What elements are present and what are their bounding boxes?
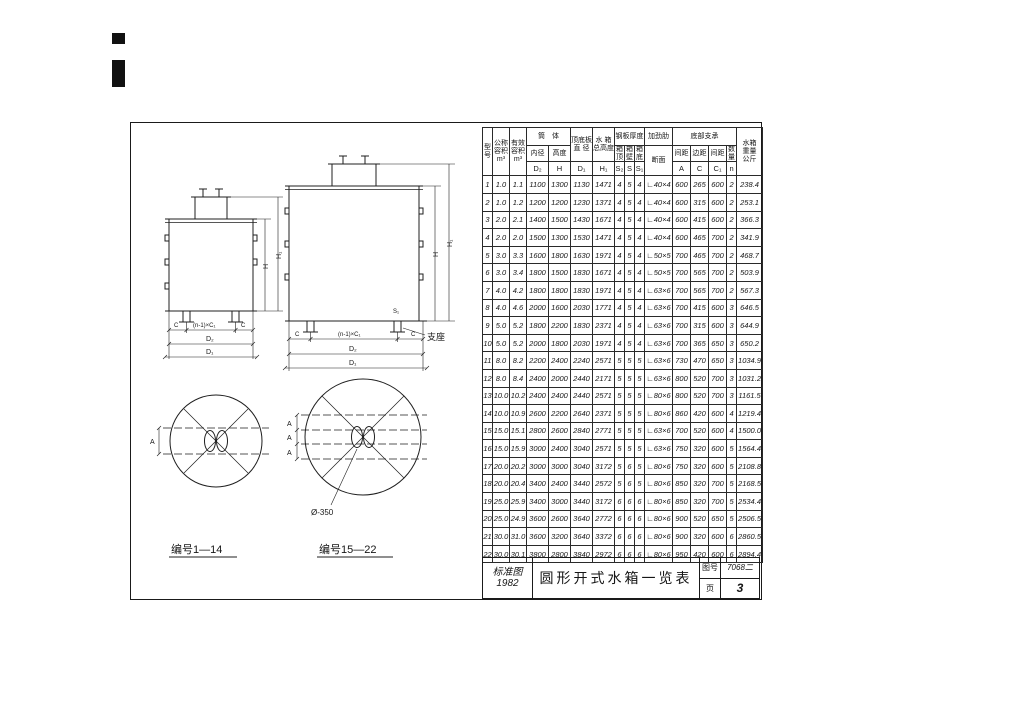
table-cell: 2600 — [549, 510, 571, 528]
table-cell: 600 — [709, 193, 727, 211]
table-cell: 3440 — [571, 493, 593, 511]
table-cell: 21 — [483, 528, 493, 546]
table-cell: 2600 — [527, 405, 549, 423]
table-cell: 4 — [635, 299, 645, 317]
table-cell: 850 — [673, 475, 691, 493]
column-header: H₁ — [593, 162, 615, 176]
table-cell: 5 — [483, 246, 493, 264]
dim-label-s1: S₁ — [393, 309, 399, 315]
table-cell: 5 — [727, 475, 737, 493]
table-cell: 470 — [691, 352, 709, 370]
tank-table-wrapper: 型 号公称 容积 m³有效 容积 m³筒 体顶底板 直 径水 箱 总高度钢板厚度… — [482, 127, 760, 558]
table-cell: 1400 — [527, 211, 549, 229]
table-cell: 5 — [625, 281, 635, 299]
table-cell: 650 — [709, 334, 727, 352]
table-cell: 3000 — [549, 457, 571, 475]
table-cell: 3.3 — [510, 246, 527, 264]
table-row: 84.04.62000160020301771454∟63×6700415600… — [483, 299, 763, 317]
table-cell: 265 — [691, 176, 709, 194]
table-cell: 700 — [709, 369, 727, 387]
drawing-number-value: 7068二 — [721, 558, 759, 578]
table-cell: 4.0 — [493, 299, 510, 317]
table-cell: 850 — [673, 493, 691, 511]
table-cell: 4 — [615, 334, 625, 352]
table-cell: 6 — [625, 510, 635, 528]
table-cell: 700 — [673, 264, 691, 282]
dim-label-nc1: (n-1)×C₁ — [193, 323, 216, 329]
support-leg — [307, 321, 314, 332]
column-header: 水箱 重量 公斤 — [737, 128, 763, 176]
table-cell: 320 — [691, 440, 709, 458]
table-row: 118.08.22200240022402571555∟63×673047065… — [483, 352, 763, 370]
table-cell: 1500 — [527, 229, 549, 247]
table-cell: 4 — [727, 422, 737, 440]
table-cell: 1800 — [527, 281, 549, 299]
table-cell: 900 — [673, 510, 691, 528]
table-cell: 1471 — [593, 176, 615, 194]
table-cell: 3600 — [527, 528, 549, 546]
table-cell: 600 — [673, 193, 691, 211]
column-header: 箱顶 — [615, 146, 625, 162]
table-cell: 600 — [709, 317, 727, 335]
table-cell: 1800 — [549, 281, 571, 299]
table-cell: 650 — [709, 352, 727, 370]
table-cell: 5 — [615, 405, 625, 423]
table-cell: 4 — [615, 317, 625, 335]
table-cell: 2200 — [527, 352, 549, 370]
dim-label-d2: D₂ — [206, 336, 214, 343]
table-cell: 2 — [727, 281, 737, 299]
table-cell: 650 — [709, 510, 727, 528]
table-cell: 5 — [625, 334, 635, 352]
table-cell: 600 — [673, 229, 691, 247]
small-tank-plan: A — [150, 395, 269, 487]
table-cell: 320 — [691, 457, 709, 475]
table-cell: 6 — [727, 528, 737, 546]
table-cell: 2371 — [593, 405, 615, 423]
table-cell: ∟80×6 — [645, 528, 673, 546]
table-cell: 2 — [727, 176, 737, 194]
column-header: 顶底板 直 径 — [571, 128, 593, 162]
table-cell: 30.0 — [493, 528, 510, 546]
table-cell: 9 — [483, 317, 493, 335]
column-header: D₁ — [571, 162, 593, 176]
table-cell: 3000 — [549, 493, 571, 511]
table-cell: 1471 — [593, 229, 615, 247]
support-leg — [183, 311, 190, 322]
table-cell: 4 — [615, 211, 625, 229]
table-cell: 14 — [483, 405, 493, 423]
table-cell: 700 — [709, 493, 727, 511]
table-cell: 1671 — [593, 211, 615, 229]
manhole-label: Ø-350 — [311, 508, 334, 517]
table-cell: 3372 — [593, 528, 615, 546]
dim-label-h1: H₁ — [447, 239, 454, 247]
table-cell: 5 — [635, 457, 645, 475]
table-cell: 6 — [615, 493, 625, 511]
table-cell: 5 — [635, 369, 645, 387]
table-cell: 4 — [615, 264, 625, 282]
table-row: 21.01.21200120012301371454∟40×4600315600… — [483, 193, 763, 211]
table-cell: ∟50×5 — [645, 264, 673, 282]
table-cell: 6 — [625, 457, 635, 475]
table-cell: 1300 — [549, 229, 571, 247]
table-cell: 1430 — [571, 211, 593, 229]
table-cell: 5 — [615, 422, 625, 440]
table-cell: 5.0 — [493, 334, 510, 352]
table-cell: 15.1 — [510, 422, 527, 440]
table-cell: 17 — [483, 457, 493, 475]
table-cell: 13 — [483, 387, 493, 405]
table-cell: 5 — [625, 229, 635, 247]
table-cell: 1971 — [593, 334, 615, 352]
standard-year: 1982 — [496, 578, 518, 590]
column-header: 底部支承 — [673, 128, 737, 146]
table-cell: 900 — [673, 528, 691, 546]
table-cell: 4 — [615, 229, 625, 247]
table-cell: 2240 — [571, 352, 593, 370]
drawing-number-row: 图号 7068二 — [700, 558, 759, 579]
table-cell: 2.1 — [510, 211, 527, 229]
table-cell: 700 — [673, 246, 691, 264]
dim-label-c: C — [411, 332, 416, 338]
column-header: 箱壁 — [625, 146, 635, 162]
table-cell: ∟50×5 — [645, 246, 673, 264]
table-cell: 3600 — [527, 510, 549, 528]
table-cell: 4.6 — [510, 299, 527, 317]
table-cell: 2400 — [527, 369, 549, 387]
dim-label-h: H — [263, 264, 270, 269]
table-row: 11.01.11100130011301471454∟40×4600265600… — [483, 176, 763, 194]
table-cell: ∟80×6 — [645, 475, 673, 493]
table-row: 2025.024.93600260036402772666∟80×6900520… — [483, 510, 763, 528]
table-cell: ∟63×6 — [645, 440, 673, 458]
table-cell: 5 — [727, 493, 737, 511]
table-cell: 15.9 — [510, 440, 527, 458]
table-cell: 15.0 — [493, 422, 510, 440]
table-cell: ∟40×4 — [645, 193, 673, 211]
standard-label: 标准图 — [493, 567, 523, 579]
table-cell: 1 — [483, 176, 493, 194]
table-cell: 3000 — [527, 457, 549, 475]
table-cell: 4 — [635, 229, 645, 247]
table-cell: 730 — [673, 352, 691, 370]
table-cell: 20.0 — [493, 475, 510, 493]
table-cell: 2860.5 — [737, 528, 763, 546]
table-cell: ∟40×4 — [645, 211, 673, 229]
dim-label-nc1: (n-1)×C₁ — [338, 332, 361, 338]
table-cell: 5 — [615, 369, 625, 387]
table-cell: 5.2 — [510, 317, 527, 335]
large-tank-plan: A A A Ø-350 — [287, 379, 427, 517]
column-header: 高度 — [549, 146, 571, 162]
table-cell: 7 — [483, 281, 493, 299]
table-cell: 5 — [635, 405, 645, 423]
dim-label-a: A — [287, 450, 292, 457]
table-row: 128.08.42400200024402171555∟63×680052070… — [483, 369, 763, 387]
table-cell: 25.9 — [510, 493, 527, 511]
table-cell: 5 — [625, 440, 635, 458]
table-cell: 4 — [615, 193, 625, 211]
table-row: 1410.010.92600220026402371555∟80×6860420… — [483, 405, 763, 423]
table-cell: 5 — [615, 387, 625, 405]
table-cell: 5 — [625, 387, 635, 405]
table-cell: 2800 — [527, 422, 549, 440]
table-cell: ∟63×6 — [645, 299, 673, 317]
table-cell: ∟63×6 — [645, 317, 673, 335]
table-cell: 1830 — [571, 264, 593, 282]
column-header: D₂ — [527, 162, 549, 176]
table-cell: 3 — [483, 211, 493, 229]
table-cell: 2000 — [527, 334, 549, 352]
table-cell: 3040 — [571, 440, 593, 458]
table-cell: 5.0 — [493, 317, 510, 335]
dim-label-c: C — [174, 323, 179, 329]
title-block: 标准图 1982 圆形开式水箱一览表 图号 7068二 页 3 — [482, 557, 760, 599]
table-cell: 2 — [483, 193, 493, 211]
table-cell: 2200 — [549, 405, 571, 423]
table-cell: 600 — [709, 299, 727, 317]
large-tank-elevation — [285, 156, 427, 332]
column-header: n — [727, 162, 737, 176]
number-box: 图号 7068二 页 3 — [699, 558, 759, 598]
table-cell: 3040 — [571, 457, 593, 475]
table-cell: 5 — [635, 422, 645, 440]
table-cell: 12 — [483, 369, 493, 387]
table-cell: 25.0 — [493, 510, 510, 528]
dim-label-a: A — [150, 439, 155, 446]
table-cell: 1800 — [527, 317, 549, 335]
table-cell: 600 — [709, 211, 727, 229]
table-cell: 5 — [625, 211, 635, 229]
table-cell: 520 — [691, 387, 709, 405]
table-cell: 10.0 — [493, 387, 510, 405]
table-row: 1820.020.43400240034402572565∟80×6850320… — [483, 475, 763, 493]
large-tank-dimensions: C (n-1)×C₁ C D₂ D₁ H H₁ S₁ 支座 — [283, 164, 455, 371]
table-cell: 2200 — [549, 317, 571, 335]
table-cell: ∟63×6 — [645, 422, 673, 440]
table-cell: 600 — [673, 211, 691, 229]
table-cell: 320 — [691, 493, 709, 511]
table-cell: 644.9 — [737, 317, 763, 335]
table-cell: 2030 — [571, 334, 593, 352]
table-cell: 5 — [727, 457, 737, 475]
table-cell: 10.2 — [510, 387, 527, 405]
table-cell: 1300 — [549, 176, 571, 194]
column-header: H — [549, 162, 571, 176]
column-header: 间距 — [673, 146, 691, 162]
table-cell: 20 — [483, 510, 493, 528]
page-label: 页 — [700, 579, 721, 599]
dim-label-d2: D₂ — [349, 346, 357, 353]
table-cell: 1830 — [571, 317, 593, 335]
table-cell: 20.0 — [493, 457, 510, 475]
table-cell: 8.4 — [510, 369, 527, 387]
table-cell: 5.2 — [510, 334, 527, 352]
table-cell: 4.0 — [493, 281, 510, 299]
table-cell: 3200 — [549, 528, 571, 546]
table-cell: 646.5 — [737, 299, 763, 317]
table-cell: 3 — [727, 299, 737, 317]
table-cell: 1771 — [593, 299, 615, 317]
table-cell: 320 — [691, 528, 709, 546]
table-cell: 2600 — [549, 422, 571, 440]
table-cell: 6 — [635, 510, 645, 528]
table-cell: 11 — [483, 352, 493, 370]
dim-label-c: C — [241, 323, 246, 329]
table-cell: 2 — [727, 229, 737, 247]
column-header: 边距 — [691, 146, 709, 162]
table-cell: 5 — [727, 510, 737, 528]
table-cell: 700 — [673, 422, 691, 440]
table-row: 1925.025.93400300034403172666∟80×6850320… — [483, 493, 763, 511]
table-cell: 415 — [691, 211, 709, 229]
table-row: 74.04.21800180018301971454∟63×6700565700… — [483, 281, 763, 299]
table-cell: 3 — [727, 334, 737, 352]
table-cell: 8.0 — [493, 352, 510, 370]
support-leg — [394, 321, 401, 332]
table-cell: 1219.4 — [737, 405, 763, 423]
table-row: 2130.031.03600320036403372666∟80×6900320… — [483, 528, 763, 546]
table-cell: 1100 — [527, 176, 549, 194]
table-cell: 19 — [483, 493, 493, 511]
table-cell: 700 — [709, 387, 727, 405]
table-cell: 4 — [635, 211, 645, 229]
table-cell: 24.9 — [510, 510, 527, 528]
table-cell: 465 — [691, 229, 709, 247]
table-cell: 3 — [727, 352, 737, 370]
table-cell: ∟40×4 — [645, 176, 673, 194]
table-cell: 2.0 — [493, 211, 510, 229]
table-cell: 2171 — [593, 369, 615, 387]
column-header: 公称 容积 m³ — [493, 128, 510, 176]
table-row: 1720.020.23000300030403172565∟80×6750320… — [483, 457, 763, 475]
table-cell: 6 — [635, 493, 645, 511]
table-row: 1310.010.22400240024402571555∟80×6800520… — [483, 387, 763, 405]
table-cell: 1630 — [571, 246, 593, 264]
table-cell: 565 — [691, 281, 709, 299]
table-cell: 1600 — [549, 299, 571, 317]
table-cell: 3172 — [593, 493, 615, 511]
table-cell: ∟40×4 — [645, 229, 673, 247]
table-cell: ∟80×6 — [645, 387, 673, 405]
table-cell: 700 — [673, 334, 691, 352]
table-cell: 415 — [691, 299, 709, 317]
table-cell: 3172 — [593, 457, 615, 475]
table-cell: 5 — [615, 440, 625, 458]
table-cell: 600 — [709, 440, 727, 458]
dim-label-d1: D₁ — [206, 349, 214, 356]
table-cell: ∟80×6 — [645, 493, 673, 511]
table-cell: 18 — [483, 475, 493, 493]
table-cell: 2506.5 — [737, 510, 763, 528]
table-cell: 1530 — [571, 229, 593, 247]
table-cell: 5 — [635, 440, 645, 458]
table-cell: 31.0 — [510, 528, 527, 546]
table-cell: 6 — [615, 528, 625, 546]
page-number-row: 页 3 — [700, 579, 759, 599]
table-cell: 320 — [691, 475, 709, 493]
table-cell: 1600 — [527, 246, 549, 264]
support-leg — [232, 311, 239, 322]
column-header: 加劲肋 — [645, 128, 673, 146]
table-cell: 2400 — [549, 440, 571, 458]
table-cell: 341.9 — [737, 229, 763, 247]
table-row: 1515.015.12800260028402771555∟63×6700520… — [483, 422, 763, 440]
table-cell: 16 — [483, 440, 493, 458]
table-cell: 1130 — [571, 176, 593, 194]
table-cell: 4 — [615, 176, 625, 194]
table-cell: 1200 — [549, 193, 571, 211]
table-cell: 2400 — [549, 352, 571, 370]
table-cell: 3.0 — [493, 246, 510, 264]
table-cell: 10 — [483, 334, 493, 352]
table-cell: 700 — [673, 299, 691, 317]
dim-label-c: C — [295, 332, 300, 338]
dim-label-h1: H₁ — [276, 251, 283, 259]
table-cell: 4 — [635, 176, 645, 194]
table-cell: 1800 — [527, 264, 549, 282]
table-cell: 4 — [635, 334, 645, 352]
table-cell: 6 — [635, 528, 645, 546]
column-header: A — [673, 162, 691, 176]
table-cell: 2000 — [527, 299, 549, 317]
table-cell: 3000 — [527, 440, 549, 458]
table-row: 105.05.22000180020301971454∟63×670036565… — [483, 334, 763, 352]
table-cell: 366.3 — [737, 211, 763, 229]
table-cell: 1800 — [549, 334, 571, 352]
table-row: 95.05.21800220018302371454∟63×6700315600… — [483, 317, 763, 335]
table-cell: 1034.9 — [737, 352, 763, 370]
table-cell: 5 — [625, 176, 635, 194]
table-cell: 600 — [709, 422, 727, 440]
table-cell: 2371 — [593, 317, 615, 335]
column-header: 筒 体 — [527, 128, 571, 146]
hatch — [332, 164, 376, 186]
binding-mark — [112, 60, 125, 87]
table-cell: 567.3 — [737, 281, 763, 299]
table-cell: 365 — [691, 334, 709, 352]
table-cell: 520 — [691, 422, 709, 440]
table-cell: 2772 — [593, 510, 615, 528]
table-cell: 1800 — [549, 246, 571, 264]
table-cell: 468.7 — [737, 246, 763, 264]
table-cell: 1371 — [593, 193, 615, 211]
table-cell: ∟63×6 — [645, 334, 673, 352]
table-cell: 1971 — [593, 246, 615, 264]
table-cell: 2400 — [549, 387, 571, 405]
table-cell: 465 — [691, 246, 709, 264]
table-cell: ∟80×6 — [645, 457, 673, 475]
table-cell: 4.2 — [510, 281, 527, 299]
table-cell: 800 — [673, 387, 691, 405]
table-cell: 315 — [691, 317, 709, 335]
dim-label-h: H — [433, 252, 440, 257]
table-cell: 2572 — [593, 475, 615, 493]
column-header: 断面 — [645, 146, 673, 176]
table-cell: 2 — [727, 246, 737, 264]
dim-label-d1: D₁ — [349, 360, 357, 367]
table-cell: 600 — [673, 176, 691, 194]
table-cell: 1564.4 — [737, 440, 763, 458]
table-cell: 1500 — [549, 211, 571, 229]
table-cell: 600 — [709, 528, 727, 546]
table-cell: 2000 — [549, 369, 571, 387]
table-cell: 1500.0 — [737, 422, 763, 440]
table-cell: 4 — [635, 281, 645, 299]
table-cell: 5 — [625, 422, 635, 440]
table-cell: 2440 — [571, 387, 593, 405]
